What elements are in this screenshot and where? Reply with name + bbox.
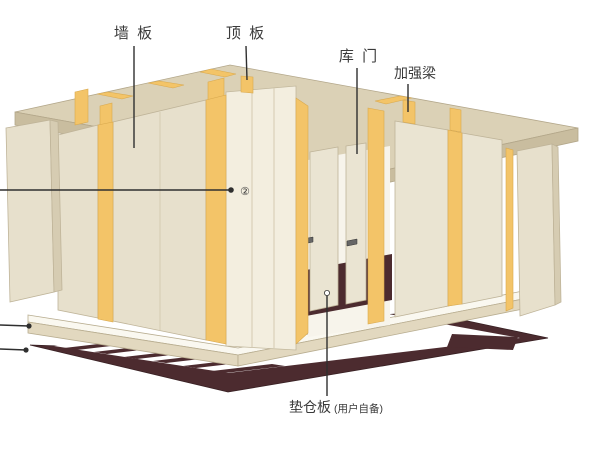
wall-joint-strip bbox=[506, 148, 513, 311]
label-door: 库 门 bbox=[339, 48, 379, 65]
joint-tab bbox=[75, 89, 88, 125]
label-reinforcing-beam: 加强梁 bbox=[394, 65, 436, 81]
door-leaf bbox=[310, 147, 338, 311]
leader-dot bbox=[23, 347, 28, 352]
leader-dot bbox=[26, 323, 31, 328]
label-pallet: 垫仓板 bbox=[289, 399, 331, 415]
leader-dot-light bbox=[324, 290, 329, 295]
label-ceiling-panel: 顶 板 bbox=[226, 24, 266, 42]
floor-leader bbox=[0, 325, 29, 326]
label-pallet-note: (用户自备) bbox=[334, 402, 383, 415]
joint-tab bbox=[450, 108, 461, 132]
right-wall-panel bbox=[462, 133, 502, 304]
wall-joint-strip bbox=[98, 122, 113, 322]
pallet-left-leader bbox=[0, 349, 26, 350]
reinforcing-beam-tab bbox=[403, 100, 415, 124]
corner-panel bbox=[226, 86, 296, 350]
cold-room-diagram: 墙 板 顶 板 库 门 加强梁 ② 垫仓板 (用户自备) bbox=[0, 0, 600, 450]
corner-panel-face bbox=[226, 86, 296, 350]
door-leaf bbox=[346, 143, 366, 304]
wall-joint-strip bbox=[206, 95, 226, 344]
detached-panel-right bbox=[517, 144, 555, 316]
leader-dot bbox=[228, 187, 234, 193]
label-wall-panel: 墙 板 bbox=[114, 24, 154, 42]
diagram-canvas: 墙 板 顶 板 库 门 加强梁 ② 垫仓板 (用户自备) bbox=[0, 0, 600, 450]
left-wall bbox=[58, 100, 206, 340]
ceiling-panel-leader bbox=[246, 46, 247, 80]
left-wall-panel bbox=[58, 125, 98, 318]
wall-joint-strip bbox=[296, 98, 308, 344]
right-wall-panel bbox=[395, 121, 448, 317]
detached-panel-left bbox=[6, 120, 54, 302]
wall-joint-strip bbox=[448, 130, 462, 306]
label-callout-symbol: ② bbox=[240, 186, 250, 198]
wall-joint-strip bbox=[368, 108, 384, 324]
